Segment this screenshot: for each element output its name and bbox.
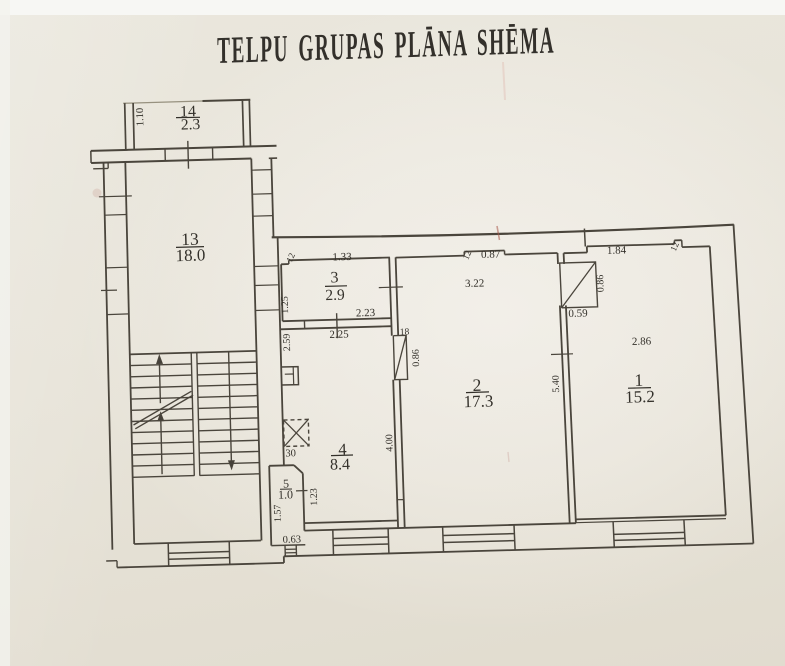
svg-text:1.0: 1.0	[278, 487, 293, 501]
svg-text:18.0: 18.0	[175, 245, 205, 265]
svg-text:1.57: 1.57	[272, 504, 283, 522]
svg-text:4.00: 4.00	[384, 434, 395, 452]
svg-text:1.25: 1.25	[280, 296, 291, 314]
svg-text:0.63: 0.63	[282, 534, 301, 546]
svg-text:2.59: 2.59	[282, 334, 293, 352]
svg-text:0.86: 0.86	[411, 349, 422, 367]
svg-text:1.23: 1.23	[309, 488, 320, 506]
svg-text:18: 18	[400, 328, 410, 338]
svg-text:0.59: 0.59	[568, 307, 588, 320]
svg-text:8.4: 8.4	[330, 456, 350, 474]
svg-text:2.9: 2.9	[325, 287, 345, 305]
svg-text:12: 12	[668, 240, 681, 252]
svg-text:3.22: 3.22	[465, 277, 485, 290]
svg-text:30: 30	[285, 448, 296, 459]
svg-text:2.3: 2.3	[181, 116, 201, 134]
svg-text:5.40: 5.40	[551, 375, 562, 393]
svg-text:1.10: 1.10	[135, 108, 147, 127]
svg-text:12: 12	[284, 251, 297, 263]
svg-text:1.84: 1.84	[607, 244, 627, 257]
svg-text:2.25: 2.25	[329, 328, 349, 341]
svg-text:2.86: 2.86	[632, 335, 652, 348]
svg-text:2.23: 2.23	[356, 307, 376, 320]
svg-text:0.87: 0.87	[481, 248, 501, 261]
svg-text:0.86: 0.86	[595, 275, 606, 293]
svg-text:17.3: 17.3	[463, 391, 493, 411]
svg-text:3: 3	[330, 269, 338, 286]
svg-text:15.2: 15.2	[625, 387, 655, 407]
svg-text:1.33: 1.33	[332, 251, 352, 264]
